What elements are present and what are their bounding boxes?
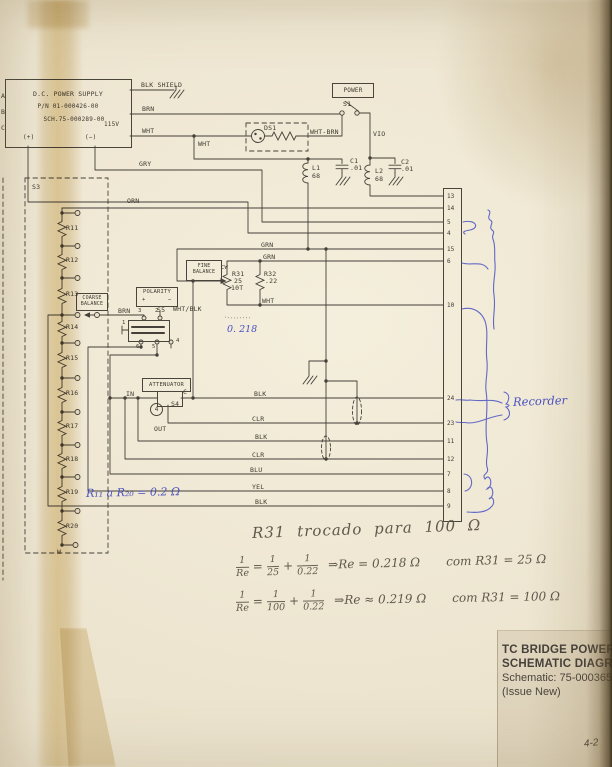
eq1-frac-022: 10.22 [297, 554, 319, 577]
attenuator-in-label: IN [126, 390, 134, 398]
eq2-num3: 1 [310, 589, 316, 599]
eq1-den1: Re [236, 566, 249, 578]
ladder-resistor-label: R12 [66, 256, 78, 264]
wire-label-blk-11: BLK [255, 433, 267, 441]
wire-label-brn2: BRN [118, 307, 130, 315]
eq2-num2: 1 [273, 590, 279, 600]
wire-label-yel: YEL [252, 483, 264, 491]
eq1-condition: com R31 = 25 Ω [446, 552, 547, 569]
s5-switch-body [128, 320, 170, 342]
psu-title: D.C. POWER SUPPLY [18, 90, 118, 98]
title-doc-type: SCHEMATIC DIAGRAM [502, 658, 612, 670]
connector-pin: 6 [447, 258, 451, 265]
connector-pin: 15 [447, 246, 454, 253]
s5-pin-3: 3 [138, 308, 142, 314]
l2-ref: L2 [375, 167, 383, 175]
ds1-label: DS1 [264, 124, 276, 132]
psu-plus-terminal: (+) [23, 134, 34, 142]
handwritten-equation-1: 1Re = 125 + 10.22 ⇒Re = 0.218 Ω com R31 … [236, 548, 547, 578]
wire-label-orn: ORN [127, 197, 139, 205]
eq2-den3: 0.22 [303, 600, 324, 612]
edge-connector: 13 14 5 4 15 6 10 24 23 11 12 7 8 9 [443, 188, 462, 522]
s5-pin-4: 4 [176, 338, 180, 344]
coarse-balance-line2: BALANCE [77, 301, 107, 307]
ladder-resistor-label: R17 [66, 422, 78, 430]
eq1-den3: 0.22 [297, 564, 318, 576]
ladder-resistor-label: R16 [66, 389, 78, 397]
l1-value: 68 [312, 172, 320, 180]
wire-label-wht-blk: WHT/BLK [173, 305, 202, 313]
connector-pin: 11 [447, 438, 454, 445]
connector-pin: 12 [447, 456, 454, 463]
psu-terminal-c: C [1, 124, 5, 132]
blue-pen-marks [456, 210, 510, 512]
cw-label: CW [221, 265, 228, 271]
eq1-frac-re: 1Re [236, 556, 249, 578]
title-issue: (Issue New) [502, 686, 561, 698]
junction-dots [60, 133, 371, 547]
s4-label: S4 [171, 400, 179, 408]
wire-label-blu: BLU [250, 466, 262, 474]
polarity-plus: + [142, 297, 146, 304]
s3-label: S3 [32, 183, 40, 191]
page-number: 4-2 [583, 737, 599, 749]
attenuator-title: ATTENUATOR [149, 382, 184, 388]
connector-pin: 10 [447, 302, 454, 309]
wire-label-grn2: GRN [263, 253, 275, 261]
ladder-resistor-label: R14 [66, 323, 78, 331]
wire-label-grn1: GRN [261, 241, 273, 249]
eq2-num1: 1 [239, 591, 245, 601]
eq2-result: ⇒Re ≈ 0.219 Ω [334, 592, 426, 608]
ladder-resistor-label: R15 [66, 354, 78, 362]
connector-pin: 13 [447, 193, 454, 200]
wire-label-brn: BRN [142, 105, 154, 113]
eq2-frac-022: 10.22 [303, 589, 325, 611]
eq2-frac-100: 1100 [267, 590, 286, 612]
title-schematic-number: Schematic: 75-000365-00 [502, 672, 612, 684]
wire-label-clr-23: CLR [252, 415, 264, 423]
ladder-resistor-label: R13 [66, 290, 78, 298]
scanned-schematic-page: D.C. POWER SUPPLY P/N 01-000426-00 SCH.7… [0, 0, 612, 767]
handwritten-recorder-note: Recorder [513, 393, 567, 409]
attenuator-c-label: C [183, 388, 187, 396]
s5-pin-5: 5 [152, 344, 156, 350]
eq1-num1: 1 [239, 556, 245, 566]
connector-pin: 23 [447, 420, 454, 427]
eq2-den1: Re [236, 601, 249, 613]
psu-part-number: P/N 01-000426-00 [18, 103, 118, 111]
c2-value: .01 [401, 165, 413, 173]
wire-label-blk-24: BLK [254, 390, 266, 398]
eq2-den2: 100 [267, 600, 285, 612]
wire-label-wht-brn: WHT-BRN [310, 128, 339, 136]
l2-value: 68 [375, 175, 383, 183]
coarse-balance-box: COARSE BALANCE [76, 293, 108, 311]
handwritten-ladder-note: R₁₁ a R₂₀ = 0.2 Ω [86, 485, 180, 500]
eq1-num3: 1 [304, 554, 310, 564]
eq1-plus: + [283, 559, 293, 573]
dc-power-supply-box: D.C. POWER SUPPLY P/N 01-000426-00 SCH.7… [5, 79, 132, 148]
eq1-num2: 1 [270, 555, 276, 565]
connector-pin: 9 [447, 503, 451, 510]
eq1-den2: 25 [267, 565, 279, 577]
title-product: TC BRIDGE POWER UNIT [502, 644, 612, 656]
attenuator-knob: 4 [150, 403, 163, 416]
attenuator-out-label: OUT [154, 425, 166, 433]
s5-pin-6: 6 [136, 344, 140, 350]
wire-label-wht2: WHT [198, 140, 210, 148]
handwritten-pot-note: 0. 218 [227, 324, 257, 335]
ladder-resistor-label: R19 [66, 488, 78, 496]
wire-label-gry: GRY [139, 160, 151, 168]
r31-turns: 10T [231, 284, 243, 292]
eq1-result: ⇒Re = 0.218 Ω [328, 555, 420, 571]
fine-balance-box: FINE BALANCE [186, 260, 222, 281]
fine-balance-line2: BALANCE [187, 269, 221, 275]
wire-label-clr-12: CLR [252, 451, 264, 459]
power-label: POWER [343, 87, 362, 94]
connector-pin: 24 [447, 395, 454, 402]
connector-pin: 5 [447, 219, 451, 226]
s1-label: S1 [343, 100, 351, 108]
wire-label-vio: VIO [373, 130, 385, 138]
ladder-resistor-label: R20 [66, 522, 78, 530]
r32-value: .22 [265, 277, 277, 285]
wires-group [3, 86, 443, 580]
ladder-resistor-label: R18 [66, 455, 78, 463]
polarity-minus: − [168, 297, 172, 304]
wire-label-blk-shield: BLK SHIELD [141, 81, 182, 89]
psu-minus-terminal: (−) [85, 134, 96, 142]
power-label-box: POWER [332, 83, 374, 98]
connector-pin: 4 [447, 230, 451, 237]
psu-voltage: 115V [104, 121, 119, 129]
s5-pin-1: 1 [122, 320, 126, 326]
ladder-resistor-label: R11 [66, 224, 78, 232]
handwritten-note-title: R31 trocado para 100 Ω [252, 516, 482, 542]
polarity-title: POLARITY [137, 289, 177, 296]
psu-terminal-b: B [1, 108, 5, 116]
l1-ref: L1 [312, 164, 320, 172]
s5-pin-2: 2 [155, 308, 159, 314]
eq2-equals: = [253, 594, 263, 608]
eq2-condition: com R31 = 100 Ω [452, 589, 560, 605]
c1-value: .01 [350, 164, 362, 172]
connector-pin: 14 [447, 205, 454, 212]
eq1-equals: = [253, 559, 263, 573]
polarity-box: POLARITY + − [136, 287, 178, 307]
eq1-frac-25: 125 [267, 555, 280, 577]
wire-label-wht: WHT [142, 127, 154, 135]
tape-stain-bottom [50, 628, 116, 767]
psu-terminal-a: A [1, 92, 5, 100]
ladder-w-label: W [57, 548, 61, 556]
wire-label-blk-9: BLK [255, 498, 267, 506]
connector-pin: 8 [447, 488, 451, 495]
wire-label-wht3: WHT [262, 297, 274, 305]
tape-stain-top [28, 0, 88, 28]
handwritten-equation-2: 1Re = 1100 + 10.22 ⇒Re ≈ 0.219 Ω com R31… [236, 585, 560, 613]
eq2-plus: + [289, 594, 299, 608]
eq2-frac-re: 1Re [236, 591, 249, 613]
connector-pin: 7 [447, 471, 451, 478]
